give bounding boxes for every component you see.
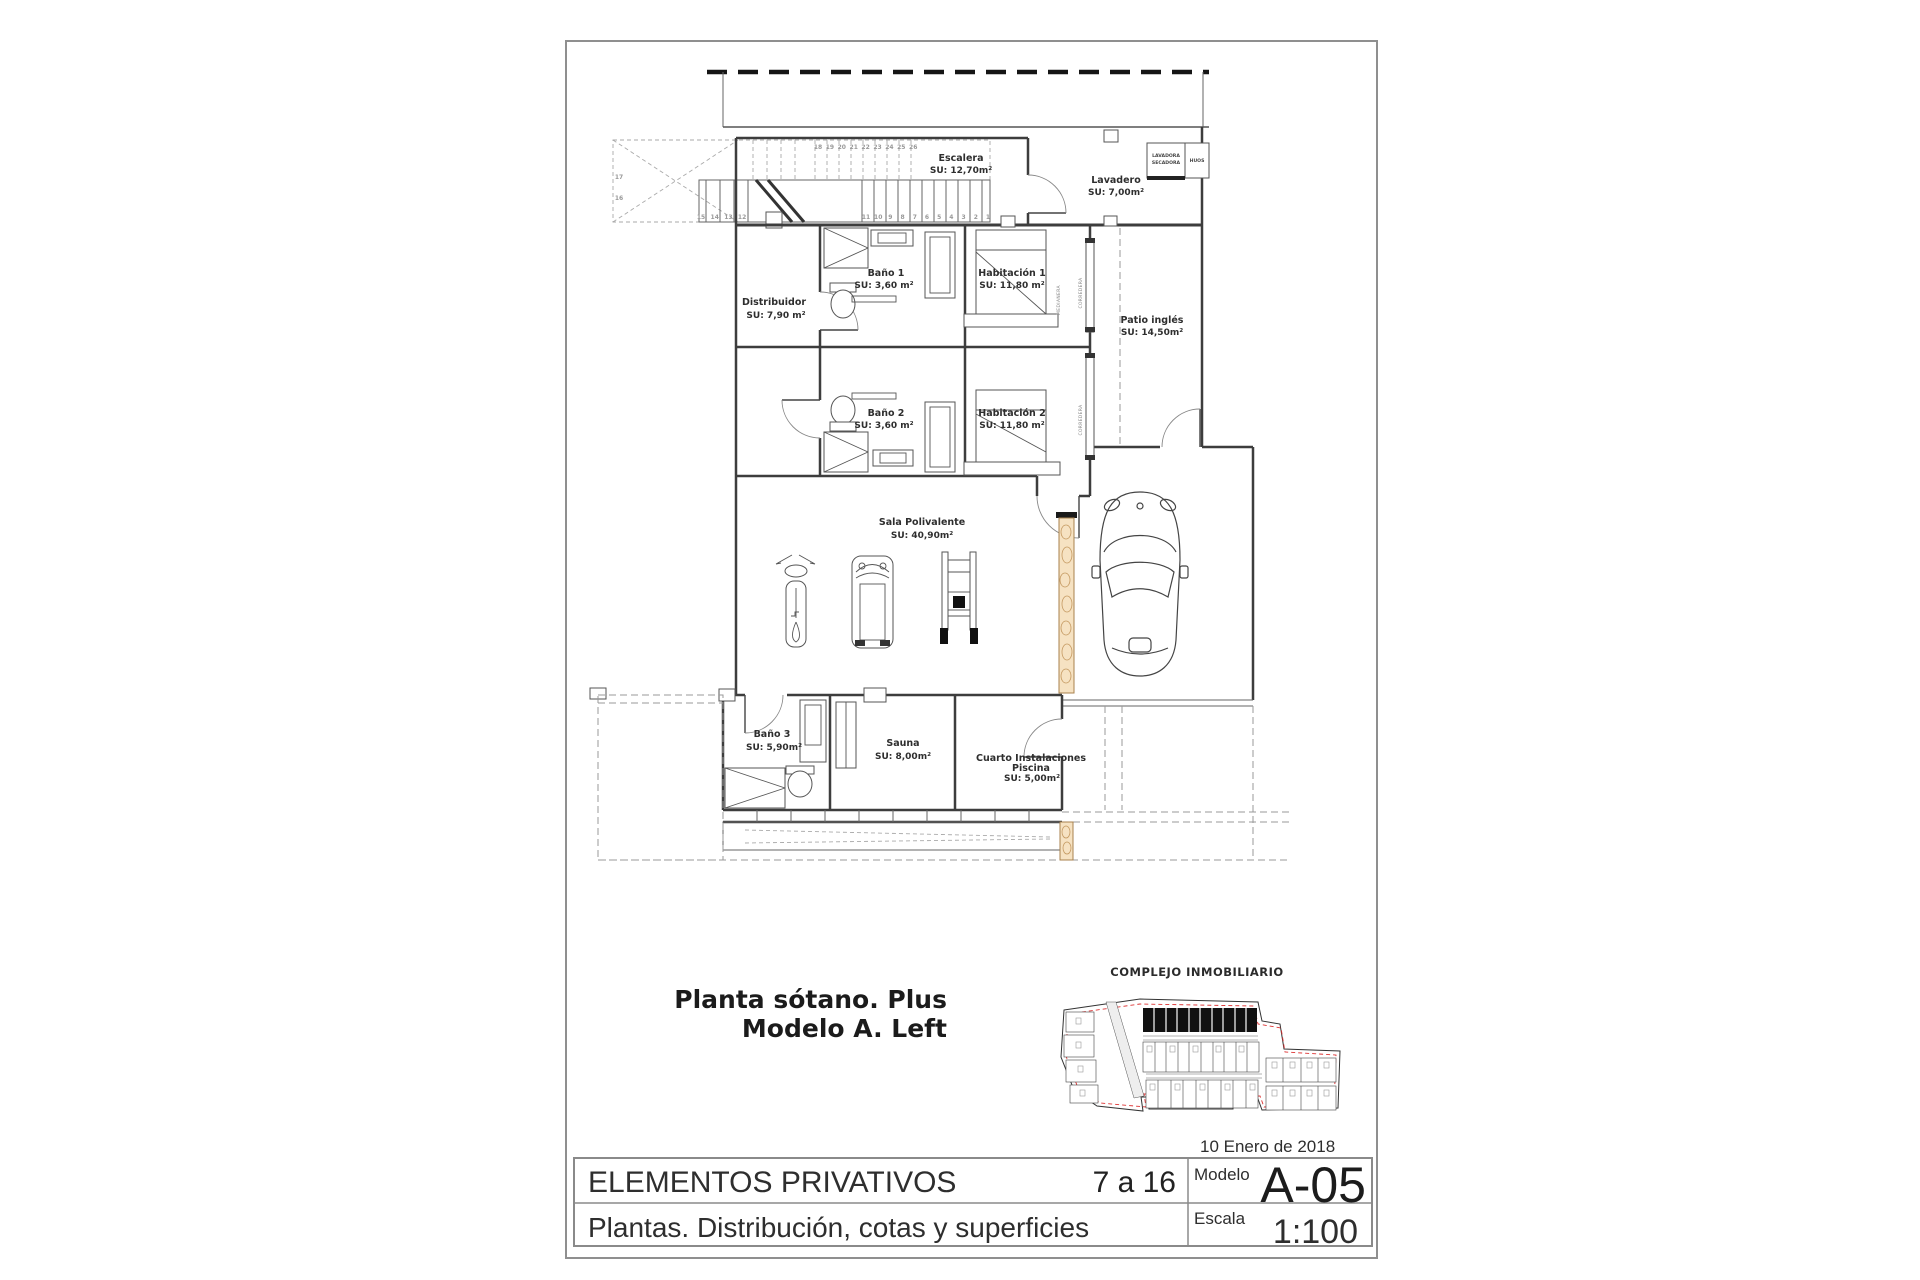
dryer-label: SECADORA bbox=[1152, 160, 1181, 166]
plan-title-line2: Modelo A. Left bbox=[742, 1014, 947, 1043]
cabinet-3 bbox=[800, 700, 826, 762]
svg-text:Escalera: Escalera bbox=[939, 153, 984, 164]
svg-text:24: 24 bbox=[885, 144, 893, 151]
svg-text:11: 11 bbox=[862, 214, 870, 221]
svg-text:8: 8 bbox=[901, 214, 905, 221]
svg-text:SU: 11,80 m²: SU: 11,80 m² bbox=[979, 421, 1045, 431]
svg-text:14: 14 bbox=[711, 214, 719, 221]
site-plots-bottom bbox=[1146, 1080, 1258, 1108]
modelo-value: A-05 bbox=[1260, 1157, 1366, 1213]
svg-text:21: 21 bbox=[850, 144, 858, 151]
svg-text:17: 17 bbox=[615, 174, 623, 181]
closet-side-label: HUOS bbox=[1190, 158, 1205, 164]
svg-text:6: 6 bbox=[925, 214, 929, 221]
sheet-range: 7 a 16 bbox=[1093, 1166, 1176, 1199]
closet-hab1 bbox=[925, 232, 955, 298]
escala-value: 1:100 bbox=[1273, 1213, 1358, 1251]
project-title: ELEMENTOS PRIVATIVOS bbox=[588, 1166, 956, 1199]
svg-text:Sauna: Sauna bbox=[886, 738, 919, 749]
svg-text:SU: 3,60 m²: SU: 3,60 m² bbox=[854, 281, 913, 291]
sink-2 bbox=[873, 450, 913, 466]
plan-title-line1: Planta sótano. Plus bbox=[674, 985, 947, 1014]
shower-1 bbox=[824, 228, 868, 268]
svg-text:SU: 12,70m²: SU: 12,70m² bbox=[930, 166, 992, 176]
svg-text:20: 20 bbox=[838, 144, 846, 151]
sink-1 bbox=[871, 230, 913, 246]
sheet-subtitle: Plantas. Distribución, cotas y superfici… bbox=[588, 1212, 1089, 1243]
date-label: 10 Enero de 2018 bbox=[1200, 1137, 1335, 1156]
svg-text:Habitación 1: Habitación 1 bbox=[978, 268, 1045, 279]
svg-text:25: 25 bbox=[897, 144, 905, 151]
site-plan-title: COMPLEJO INMOBILIARIO bbox=[1110, 965, 1283, 979]
site-plots-middle bbox=[1143, 1042, 1259, 1072]
svg-text:3: 3 bbox=[962, 214, 966, 221]
laundry-closet: LAVADORA SECADORA HUOS bbox=[1147, 143, 1209, 180]
svg-text:SU: 40,90m²: SU: 40,90m² bbox=[891, 531, 953, 541]
modelo-label: Modelo bbox=[1194, 1165, 1250, 1184]
shower-2 bbox=[824, 432, 868, 472]
svg-text:SU: 8,00m²: SU: 8,00m² bbox=[875, 752, 931, 762]
escala-label: Escala bbox=[1194, 1209, 1246, 1228]
corredera-label-1: CORREDERA bbox=[1078, 277, 1084, 308]
svg-text:SU: 5,90m²: SU: 5,90m² bbox=[746, 743, 802, 753]
svg-text:Baño 3: Baño 3 bbox=[754, 729, 791, 740]
medianera-label: MEDIANERA bbox=[1056, 285, 1062, 315]
svg-text:15: 15 bbox=[697, 214, 705, 221]
toilet-2 bbox=[831, 396, 855, 424]
shower-3 bbox=[725, 768, 785, 808]
svg-text:4: 4 bbox=[949, 214, 953, 221]
svg-text:SU: 7,90 m²: SU: 7,90 m² bbox=[746, 311, 805, 321]
svg-text:Lavadero: Lavadero bbox=[1091, 175, 1141, 186]
svg-text:7: 7 bbox=[913, 214, 917, 221]
svg-text:23: 23 bbox=[873, 144, 881, 151]
svg-text:22: 22 bbox=[861, 144, 869, 151]
svg-text:9: 9 bbox=[888, 214, 892, 221]
svg-text:5: 5 bbox=[937, 214, 941, 221]
svg-text:Distribuidor: Distribuidor bbox=[742, 297, 806, 308]
stair-numbers-top: 181920212223242526 bbox=[814, 144, 918, 151]
treadmill-icon bbox=[852, 556, 893, 648]
svg-text:Patio inglés: Patio inglés bbox=[1121, 315, 1184, 326]
svg-text:12: 12 bbox=[738, 214, 746, 221]
svg-text:Baño 1: Baño 1 bbox=[868, 268, 905, 279]
svg-text:SU: 5,00m²: SU: 5,00m² bbox=[1004, 774, 1060, 784]
architectural-drawing: 181920212223242526 15141312 111098765432… bbox=[0, 0, 1920, 1280]
washer-label: LAVADORA bbox=[1152, 153, 1180, 159]
site-plots-highlighted bbox=[1143, 1008, 1257, 1032]
svg-text:2: 2 bbox=[974, 214, 978, 221]
svg-text:16: 16 bbox=[615, 195, 623, 202]
svg-text:19: 19 bbox=[826, 144, 834, 151]
svg-text:Baño 2: Baño 2 bbox=[868, 408, 905, 419]
svg-text:SU: 7,00m²: SU: 7,00m² bbox=[1088, 188, 1144, 198]
drawing-sheet-page: 181920212223242526 15141312 111098765432… bbox=[0, 0, 1920, 1280]
closet-hab2 bbox=[925, 402, 955, 472]
svg-text:18: 18 bbox=[814, 144, 822, 151]
corredera-label-2: CORREDERA bbox=[1078, 404, 1084, 435]
svg-text:Habitación 2: Habitación 2 bbox=[978, 408, 1045, 419]
svg-text:10: 10 bbox=[874, 214, 882, 221]
svg-text:26: 26 bbox=[909, 144, 917, 151]
svg-text:Sala Polivalente: Sala Polivalente bbox=[879, 517, 965, 528]
svg-text:SU: 11,80 m²: SU: 11,80 m² bbox=[979, 281, 1045, 291]
svg-text:Piscina: Piscina bbox=[1012, 763, 1050, 774]
svg-text:SU: 3,60 m²: SU: 3,60 m² bbox=[854, 421, 913, 431]
svg-text:1: 1 bbox=[986, 214, 990, 221]
svg-text:13: 13 bbox=[724, 214, 732, 221]
svg-text:SU: 14,50m²: SU: 14,50m² bbox=[1121, 328, 1183, 338]
